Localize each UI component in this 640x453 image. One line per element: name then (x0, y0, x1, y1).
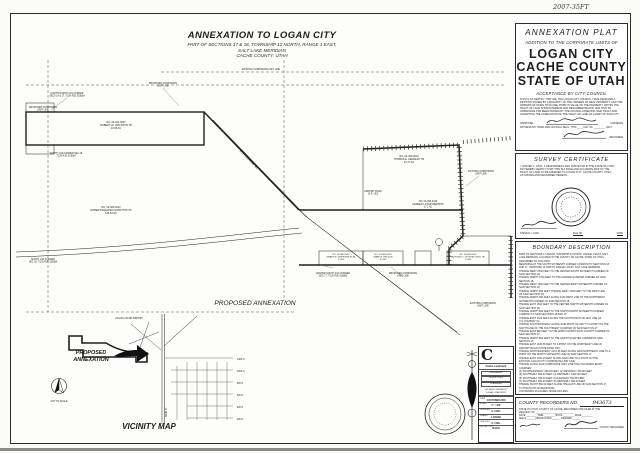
map-label: U.S. HIGHWAY 91 (239, 149, 259, 170)
map-label: NO. 04-060-0010KENNEDY II PARTNERSHIP17.… (413, 200, 444, 209)
north-arrow-symbol (52, 378, 67, 394)
map-label: AIRPORT ROAD(S.R. 252) (364, 190, 382, 196)
approved-signature-row: APPROVED CHAIRMAN (516, 116, 627, 125)
firm-service: PLANNERS (481, 382, 511, 387)
boundary-description-heading: BOUNDARY DESCRIPTION (516, 245, 627, 251)
firm-services: ENGINEERSSURVEYORSPLANNERS (479, 371, 513, 388)
boundary-description-box: BOUNDARY DESCRIPTION PART OF SECTIONS 17… (515, 241, 628, 395)
bottom-parcel-row (319, 239, 489, 266)
map-label: NO. 04-060-0013THOMAS E. KENNEDY TR34.77… (394, 155, 425, 164)
approved-label: APPROVED (520, 122, 533, 125)
recorder-fields: STATE OF UTAH, COUNTY OF CACHE, RECORDED… (516, 407, 627, 420)
survey-certificate-box: SURVEY CERTIFICATE I, STEVEN J. CARL, A … (515, 153, 628, 239)
recorder-signature-row: RECORDER (516, 129, 627, 139)
map-label: NO. 04-060-0020MARK R. NELSON5.2 AC (374, 254, 393, 261)
map-label: NO. 04-060-0024ALFONSO C. MONTELONGO JR2… (452, 254, 485, 261)
survey-fields: STEVEN J. CARL FILE NO. DATE (516, 232, 627, 236)
map-label: NORTH-NORTH 1/16 CORNERSECS 18 & 17, T12… (49, 93, 84, 98)
map-label: SOUTH 1/16 CORNERSEC 18, T12N R1E SLB&M (29, 259, 57, 264)
date-label: DATE (617, 232, 623, 236)
section-lines (26, 60, 506, 312)
cul-de-sac (436, 239, 443, 246)
airport-runways (129, 322, 161, 350)
map-title-block: ANNEXATION TO LOGAN CITY PART OF SECTION… (11, 30, 513, 59)
annexation-map: NO. 04-041-0007ROBERT W. GRIFFITHS TR24.… (11, 14, 513, 442)
vicinity-map (52, 314, 234, 424)
map-label: NO. 04-041-0007ROBERT W. GRIFFITHS TR24.… (100, 121, 132, 130)
title-block-row: PROJECT NO.061034 (479, 425, 513, 431)
map-label: VICINITY MAP (122, 422, 176, 431)
map-label: PROPOSED CORPORATELIMIT LINE (149, 82, 178, 88)
title-block-rows: DATE4 OCTOBER 2006SCALE1" = 400'DESIGNED… (479, 396, 513, 431)
plat-subtitle: ADDITION TO THE CORPORATE LIMITS OF (516, 40, 627, 45)
scanned-plat-page: 2007-35FT (0, 0, 640, 453)
recorder-no-label: COUNTY RECORDERS NO. (519, 400, 578, 405)
county-recorder-box: COUNTY RECORDERS NO. 943673 STATE OF UTA… (515, 397, 628, 442)
map-label: 400 N (237, 407, 243, 409)
firm-address: 165 WEST CENTER ST.LOGAN, UTAH 84321 (479, 388, 513, 396)
acceptance-body: THIS IS TO CERTIFY THAT WE, THE LOGAN CI… (516, 96, 627, 117)
state-name: STATE OF UTAH (516, 75, 627, 89)
map-title: ANNEXATION TO LOGAN CITY (11, 30, 513, 42)
acceptance-box: ANNEXATION PLAT ADDITION TO THE CORPORAT… (515, 23, 628, 151)
recorder-signature (562, 129, 606, 139)
county-recorder-signature (564, 420, 598, 429)
surveyor-signature (521, 220, 557, 229)
file-no-label: FILE NO. (573, 232, 583, 236)
annexation-pointer-arrow (114, 345, 149, 362)
recorder-role-label: RECORDER (609, 136, 623, 139)
map-label: PROPOSED ANNEXATION (214, 300, 296, 307)
leader-lines (51, 88, 479, 277)
map-label: NO. 04-060-0012ROBERT BRACKEN GRIFFITHS … (91, 206, 132, 215)
surveyor-seal-stamp (425, 394, 465, 434)
map-label: 600 N (237, 395, 243, 397)
map-label: LOGAN-CACHE AIRPORT (115, 317, 143, 320)
map-label: PROPOSED CORPORATELIMIT LINE (389, 272, 418, 278)
jurisdiction-names: LOGAN CITY CACHE COUNTY STATE OF UTAH (516, 48, 627, 89)
boundary-description-text: PART OF SECTIONS 17 AND 18, TOWNSHIP 12 … (516, 251, 627, 393)
map-label: PROPOSED (76, 350, 107, 356)
map-label: 800 N (237, 383, 243, 385)
approval-signature (546, 116, 598, 125)
county-recorder-heading: COUNTY RECORDERS NO. 943673 (516, 398, 627, 407)
map-label: ANNEXATION (72, 357, 108, 363)
existing-corporate-limit (463, 236, 511, 298)
map-label: EXISTING CORPORATELIMIT LINE (468, 170, 494, 176)
firm-address-line: LOGAN, UTAH 84321 (479, 392, 513, 395)
map-label: 1400 N (237, 359, 245, 361)
map-labels: NO. 04-041-0007ROBERT W. GRIFFITHS TR24.… (29, 68, 496, 431)
firm-logo: C (479, 347, 513, 364)
firm-name: Cache Landmark (479, 364, 513, 370)
vicinity-street-grid (165, 358, 233, 420)
north-arrow-decorative (467, 350, 477, 440)
map-label: NO. 04-060-0019GRANT M. GRIFFITHS ET AL7… (326, 254, 356, 261)
scan-artifact-edge (0, 448, 640, 451)
map-label: EXISTING CORPORATE LIMIT LINE (242, 68, 280, 71)
firm-service: SURVEYORS (481, 376, 511, 381)
map-label: EXISTING CORPORATELIMIT LINE (470, 302, 496, 308)
city-name: LOGAN CITY (516, 48, 627, 62)
right-panel: ANNEXATION PLAT ADDITION TO THE CORPORAT… (513, 14, 630, 442)
county-name: CACHE COUNTY (516, 61, 627, 75)
firm-service: ENGINEERS (481, 371, 511, 376)
map-label: 1000 N (237, 371, 245, 373)
map-label: PROPOSED CORPORATELIMIT LINE (29, 106, 58, 112)
map-label: MAIN ST (165, 407, 168, 417)
map-label: NOT TO SCALE (51, 400, 68, 403)
recorder-number-handwritten: 943673 (580, 400, 624, 407)
county-recorder-label: COUNTY RECORDER (600, 426, 624, 429)
handwritten-filing-number: 2007-35FT (553, 3, 633, 11)
surveyor-name: STEVEN J. CARL (520, 232, 539, 236)
plat-title: ANNEXATION PLAT (516, 28, 627, 37)
plat-sheet: NO. 04-041-0007ROBERT W. GRIFFITHS TR24.… (10, 13, 631, 444)
map-label: 200 N (237, 419, 243, 421)
survey-certificate-body: I, STEVEN J. CARL, A REGISTERED LAND SUR… (516, 163, 627, 177)
curved-road (16, 228, 302, 257)
recorder-fee-scribble (519, 422, 541, 429)
map-label: NORTH 1/16 CORNER SEC 18T12N R1E SLB&M (50, 153, 83, 158)
approved-role: CHAIRMAN (610, 122, 623, 125)
recorder-signature-area: COUNTY RECORDER (516, 420, 627, 429)
firm-title-block: C Cache Landmark ENGINEERSSURVEYORSPLANN… (478, 346, 514, 443)
map-label: CENTER-SOUTH 1/16 CORNERSEC 17, T12N R1E… (316, 273, 350, 278)
map-subtitle-3: CACHE COUNTY, UTAH (11, 53, 513, 59)
